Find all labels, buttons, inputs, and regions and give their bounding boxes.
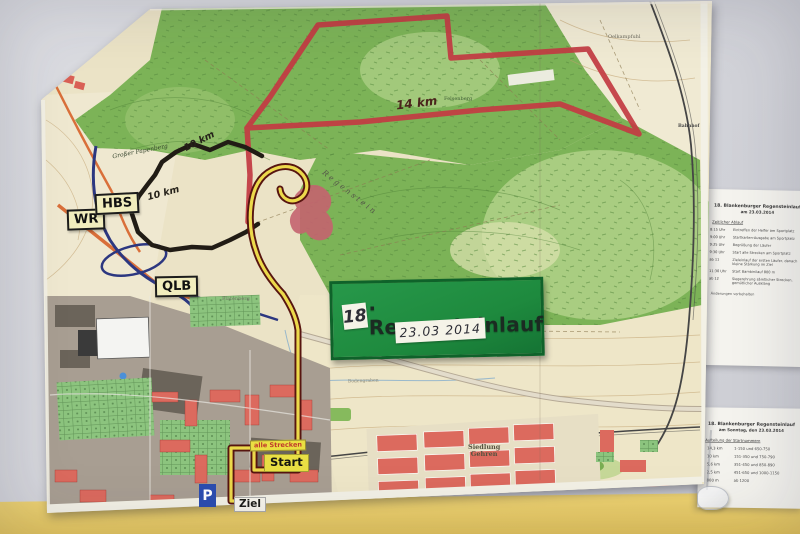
event-number-sticker: 18 — [342, 302, 368, 329]
label-oelkampfuhl: Oelkampfuhl — [608, 34, 641, 40]
start-sign: Start — [264, 454, 309, 472]
town-area-east — [366, 414, 601, 516]
event-date-sticker: 23.03 2014 — [395, 317, 486, 343]
ziel-sign: Ziel — [234, 497, 266, 512]
label-siedlung-gehren: Siedlung Gehren — [468, 444, 500, 458]
roadsign-hbs: HBS — [94, 192, 139, 215]
label-platenberg: Platenberg — [222, 296, 250, 302]
transparent-push-pin — [697, 486, 729, 510]
photo-of-event-map-on-wall: 18. Blankenburger Regensteinlauf am 23.0… — [0, 0, 800, 534]
label-bahnhof: Bahnhof — [678, 124, 699, 129]
parking-sign: P — [199, 484, 216, 507]
label-bodengraben: Bodengraben — [348, 378, 379, 384]
alle-strecken-sign: alle Strecken — [250, 440, 306, 451]
label-felsenberg: Felsenberg — [444, 96, 472, 102]
roadsign-qlb: QLB — [155, 276, 199, 298]
event-sign: 18 . Regensteinlauf 23.03 2014 — [329, 277, 545, 360]
topographic-map — [0, 0, 800, 534]
